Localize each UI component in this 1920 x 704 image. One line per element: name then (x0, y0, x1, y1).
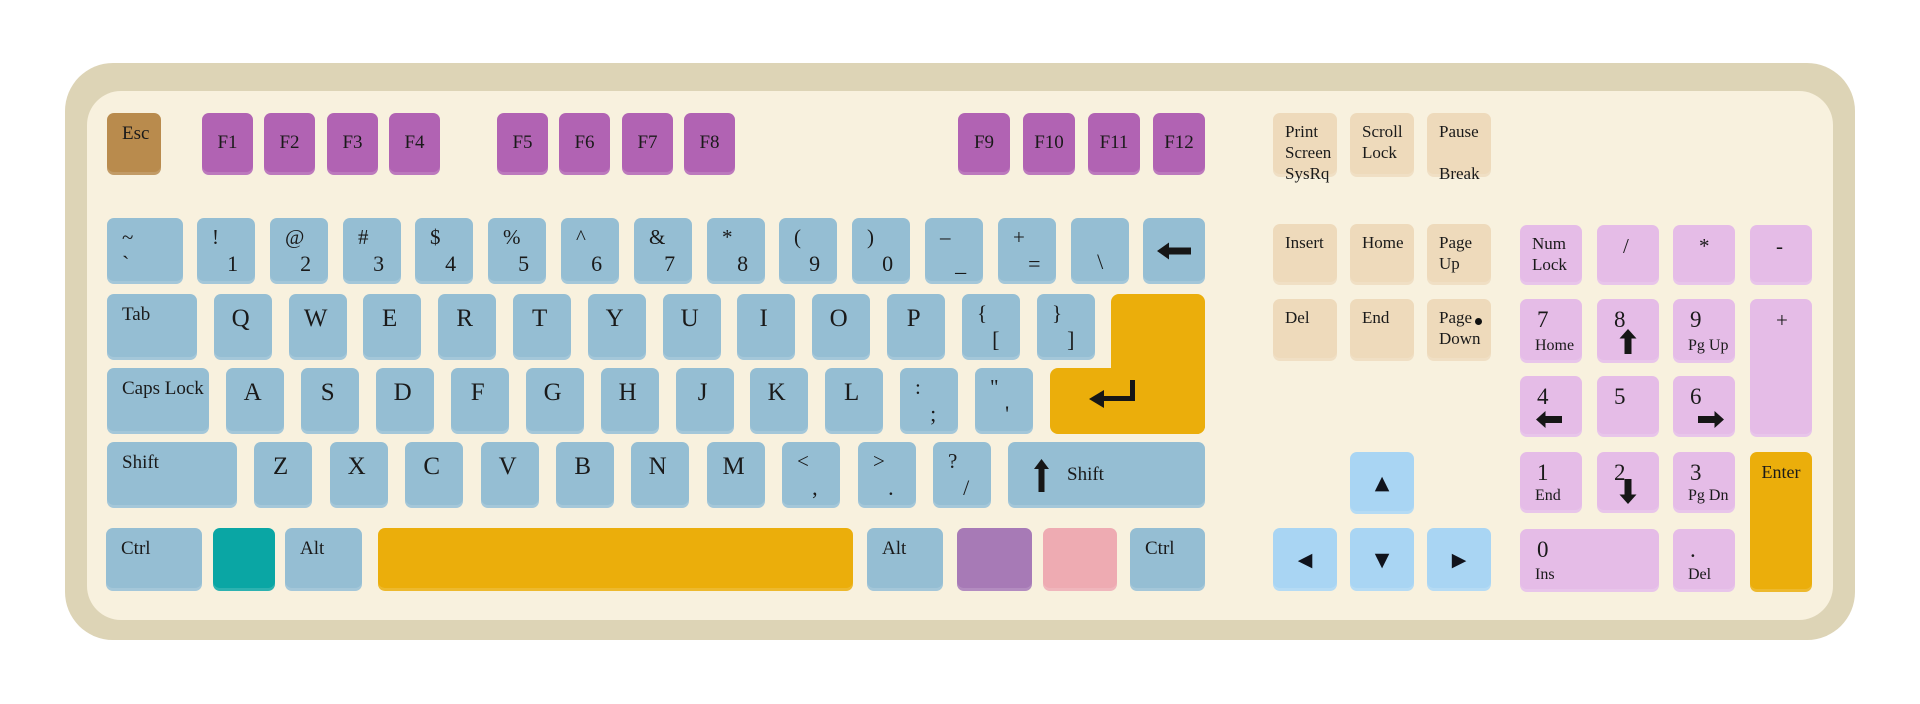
key-f6[interactable]: F6 (559, 113, 610, 175)
key-arrow-up[interactable]: ▲ (1350, 452, 1414, 514)
key-7[interactable]: &7 (634, 218, 692, 284)
key-label-lines: ScrollLock (1362, 121, 1403, 163)
key-i[interactable]: I (737, 294, 795, 360)
key-menu[interactable] (1043, 528, 1117, 591)
key-insert[interactable]: Insert (1273, 224, 1337, 285)
key-j[interactable]: J (676, 368, 734, 434)
key-shift-right[interactable]: Shift (1008, 442, 1205, 508)
key-f12[interactable]: F12 (1153, 113, 1205, 175)
keyboard: EscF1F2F3F4F5F6F7F8F9F10F11F12PrintScree… (0, 0, 1920, 704)
key-arrow-left[interactable]: ◀ (1273, 528, 1337, 591)
key-f2[interactable]: F2 (264, 113, 315, 175)
key-numpad-plus[interactable]: + (1750, 299, 1812, 437)
key-s[interactable]: S (301, 368, 359, 434)
enter-return-icon (1088, 380, 1138, 410)
np-down-arrow-icon (1620, 479, 1637, 504)
key-numpad-3[interactable]: 3Pg Dn (1673, 452, 1735, 513)
key-end[interactable]: End (1350, 299, 1414, 361)
key-label-lines: Insert (1285, 232, 1324, 253)
key-f3[interactable]: F3 (327, 113, 378, 175)
key-arrow-right[interactable]: ▶ (1427, 528, 1491, 591)
key-f5[interactable]: F5 (497, 113, 548, 175)
page-down-dot-indicator (1475, 318, 1482, 325)
key-numpad-divide[interactable]: / (1597, 225, 1659, 285)
key-label-lines: NumLock (1532, 233, 1567, 275)
key-backslash[interactable]: \ (1071, 218, 1129, 284)
key-scroll-lock[interactable]: ScrollLock (1350, 113, 1414, 177)
key-x[interactable]: X (330, 442, 388, 508)
key-f10[interactable]: F10 (1023, 113, 1075, 175)
key-6[interactable]: ^6 (561, 218, 619, 284)
key-f11[interactable]: F11 (1088, 113, 1140, 175)
key-caps-lock[interactable]: Caps Lock (107, 368, 209, 434)
key-content: Shift (1008, 442, 1205, 508)
key-numpad-0[interactable]: 0Ins (1520, 529, 1659, 592)
key-tab[interactable]: Tab (107, 294, 197, 360)
key-r[interactable]: R (438, 294, 496, 360)
key-numpad-2[interactable]: 2 (1597, 452, 1659, 513)
key-equals[interactable]: += (998, 218, 1056, 284)
key-label-lines: End (1362, 307, 1389, 328)
key-print-screen[interactable]: PrintScreenSysRq (1273, 113, 1337, 177)
key-period[interactable]: >. (858, 442, 916, 508)
key-numpad-minus[interactable]: - (1750, 225, 1812, 285)
key-3[interactable]: #3 (343, 218, 401, 284)
key-q[interactable]: Q (214, 294, 272, 360)
key-h[interactable]: H (601, 368, 659, 434)
key-semicolon[interactable]: :; (900, 368, 958, 434)
key-label-lines: Del (1285, 307, 1310, 328)
keys-layer: EscF1F2F3F4F5F6F7F8F9F10F11F12PrintScree… (0, 0, 1920, 704)
key-label-lines: PageUp (1439, 232, 1472, 274)
key-numpad-6[interactable]: 6 (1673, 376, 1735, 437)
key-n[interactable]: N (631, 442, 689, 508)
key-backtick[interactable]: ~` (107, 218, 183, 284)
key-home[interactable]: Home (1350, 224, 1414, 285)
key-e[interactable]: E (363, 294, 421, 360)
key-5[interactable]: %5 (488, 218, 546, 284)
key-l[interactable]: L (825, 368, 883, 434)
key-numpad-7[interactable]: 7Home (1520, 299, 1582, 363)
key-g[interactable]: G (526, 368, 584, 434)
key-u[interactable]: U (663, 294, 721, 360)
key-pause-break[interactable]: PauseBreak (1427, 113, 1491, 177)
key-backspace[interactable] (1143, 218, 1205, 284)
key-esc[interactable]: Esc (107, 113, 161, 175)
key-c[interactable]: C (405, 442, 463, 508)
key-1[interactable]: !1 (197, 218, 255, 284)
key-b[interactable]: B (556, 442, 614, 508)
key-shift-left[interactable]: Shift (107, 442, 237, 508)
key-numpad-1[interactable]: 1End (1520, 452, 1582, 513)
key-v[interactable]: V (481, 442, 539, 508)
key-9[interactable]: (9 (779, 218, 837, 284)
key-super[interactable] (213, 528, 275, 591)
backspace-arrow-icon (1157, 241, 1191, 261)
key-a[interactable]: A (226, 368, 284, 434)
np-left-arrow-icon (1536, 411, 1562, 428)
key-label-lines: PrintScreenSysRq (1285, 121, 1331, 184)
key-numpad-4[interactable]: 4 (1520, 376, 1582, 437)
key-f[interactable]: F (451, 368, 509, 434)
key-p[interactable]: P (887, 294, 945, 360)
np-right-arrow-icon (1698, 411, 1724, 428)
key-page-down[interactable]: PageDown (1427, 299, 1491, 361)
key-numpad-enter[interactable]: Enter (1750, 452, 1812, 592)
key-o[interactable]: O (812, 294, 870, 360)
key-space[interactable] (378, 528, 853, 591)
key-numpad-9[interactable]: 9Pg Up (1673, 299, 1735, 363)
key-numpad-5[interactable]: 5 (1597, 376, 1659, 437)
key-label-lines: Home (1362, 232, 1404, 253)
key-k[interactable]: K (750, 368, 808, 434)
key-label-lines: PageDown (1439, 307, 1481, 349)
key-numpad-8[interactable]: 8 (1597, 299, 1659, 363)
key-8[interactable]: *8 (707, 218, 765, 284)
key-quote[interactable]: "' (975, 368, 1033, 434)
np-up-arrow-icon (1620, 329, 1637, 354)
key-t[interactable]: T (513, 294, 571, 360)
key-numpad-dot[interactable]: .Del (1673, 529, 1735, 592)
key-2[interactable]: @2 (270, 218, 328, 284)
key-delete[interactable]: Del (1273, 299, 1337, 361)
key-num-lock[interactable]: NumLock (1520, 225, 1582, 285)
key-win[interactable] (957, 528, 1032, 591)
key-numpad-multiply[interactable]: * (1673, 225, 1735, 285)
key-w[interactable]: W (289, 294, 347, 360)
key-f9[interactable]: F9 (958, 113, 1010, 175)
key-d[interactable]: D (376, 368, 434, 434)
key-alt-left[interactable]: Alt (285, 528, 362, 591)
key-arrow-down[interactable]: ▼ (1350, 528, 1414, 591)
key-label-lines: PauseBreak (1439, 121, 1480, 184)
key-page-up[interactable]: PageUp (1427, 224, 1491, 285)
key-0[interactable]: )0 (852, 218, 910, 284)
key-y[interactable]: Y (588, 294, 646, 360)
key-4[interactable]: $4 (415, 218, 473, 284)
key-z[interactable]: Z (254, 442, 312, 508)
key-ctrl-left[interactable]: Ctrl (106, 528, 202, 591)
key-f7[interactable]: F7 (622, 113, 673, 175)
key-f1[interactable]: F1 (202, 113, 253, 175)
key-open-bracket[interactable]: {[ (962, 294, 1020, 360)
key-f4[interactable]: F4 (389, 113, 440, 175)
key-ctrl-right[interactable]: Ctrl (1130, 528, 1205, 591)
key-alt-right[interactable]: Alt (867, 528, 943, 591)
key-enter[interactable] (1050, 294, 1205, 434)
shift-up-arrow-icon (1034, 459, 1049, 492)
key-minus[interactable]: –_ (925, 218, 983, 284)
key-f8[interactable]: F8 (684, 113, 735, 175)
key-slash[interactable]: ?/ (933, 442, 991, 508)
key-comma[interactable]: <, (782, 442, 840, 508)
key-m[interactable]: M (707, 442, 765, 508)
